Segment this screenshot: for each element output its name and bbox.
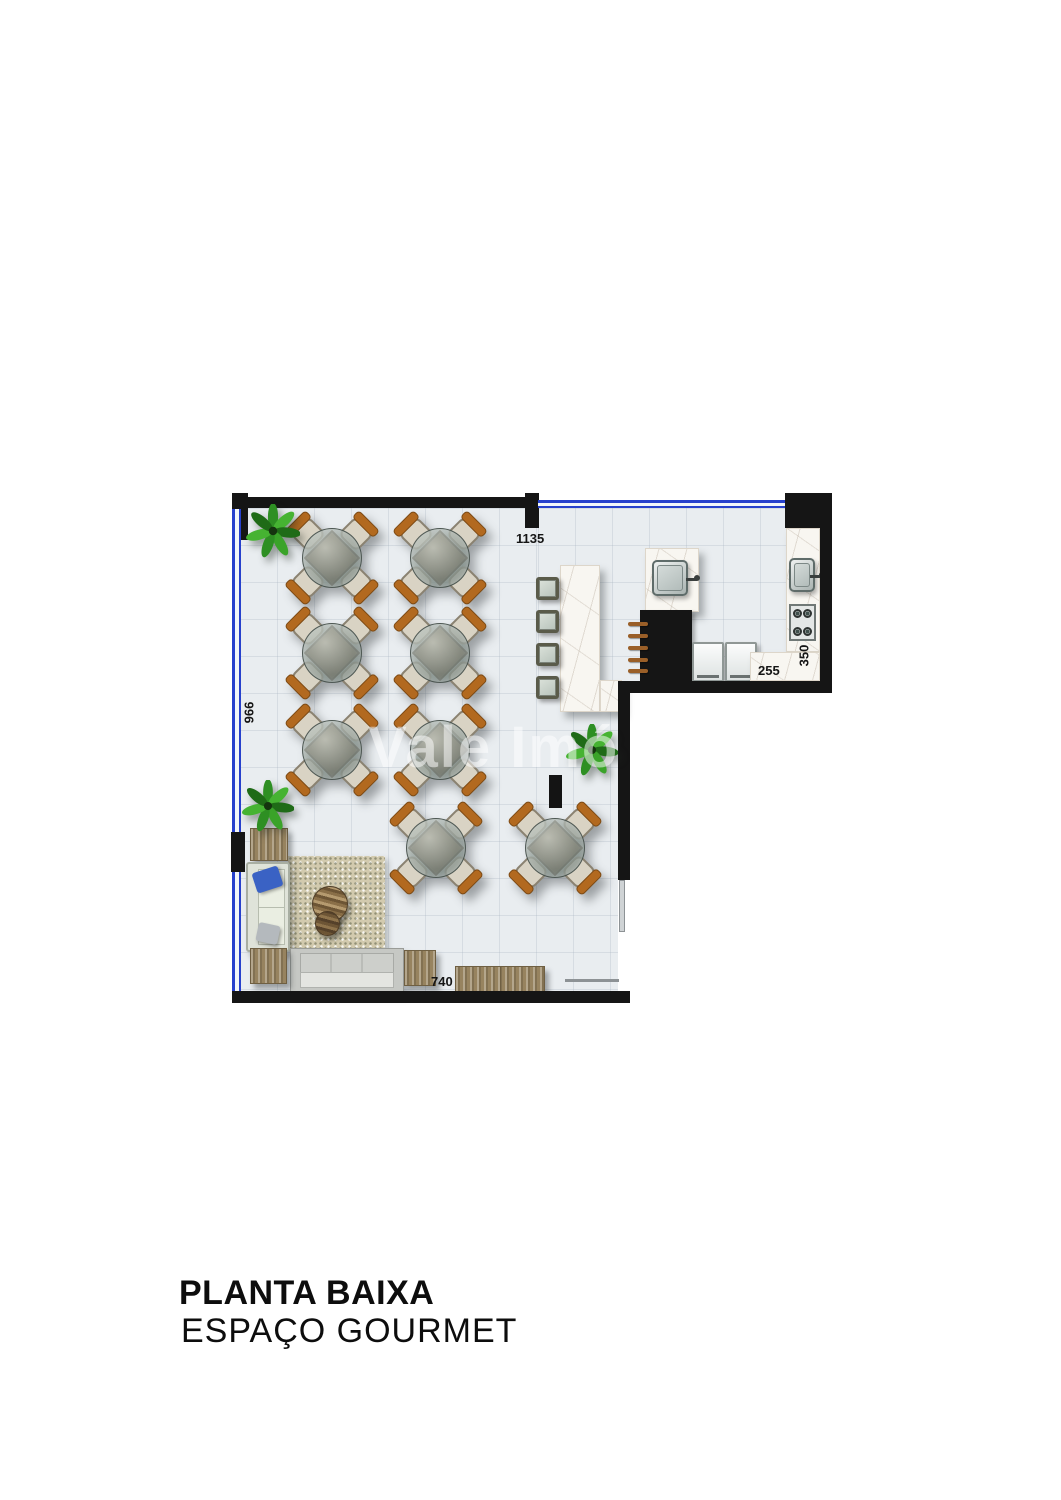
- dining-table-2: [394, 512, 486, 604]
- table-glass-top: [406, 818, 466, 878]
- plant-icon: [566, 724, 618, 776]
- plan-title: PLANTA BAIXA: [179, 1274, 434, 1313]
- skewer-icon: [628, 646, 648, 650]
- dining-table-5: [286, 704, 378, 796]
- sink-basin: [657, 565, 683, 591]
- sink-icon: [652, 560, 688, 596]
- table-glass-top: [302, 720, 362, 780]
- dining-table-7: [390, 802, 482, 894]
- table-glass-top: [410, 528, 470, 588]
- corner-top-right: [785, 493, 820, 528]
- wall-kitchen-bottom: [618, 681, 832, 693]
- bar-stool-icon: [536, 610, 559, 633]
- skewer-icon: [628, 634, 648, 638]
- column-left-wall: [231, 832, 245, 872]
- sink-icon: [789, 558, 815, 592]
- bar-stool-icon: [536, 577, 559, 600]
- floor-plan-page: 1135 966 350 255 740: [0, 0, 1061, 1500]
- dimension-bottom-width: 740: [431, 974, 453, 989]
- table-glass-top: [525, 818, 585, 878]
- column-icon: [549, 775, 562, 808]
- door-right-wall: [619, 880, 625, 932]
- dining-table-6: [394, 704, 486, 796]
- burner-icon: [803, 627, 812, 636]
- dimension-kitchen-depth: 350: [796, 645, 811, 667]
- sideboard-door: [456, 967, 501, 992]
- burner-icon: [803, 609, 812, 618]
- wall-main-right: [618, 681, 630, 880]
- burner-icon: [793, 609, 802, 618]
- table-glass-top: [410, 623, 470, 683]
- stove-icon: [789, 604, 816, 641]
- plant-icon: [242, 780, 294, 832]
- dimension-top-width: 1135: [516, 531, 544, 546]
- side-table-icon: [250, 948, 287, 984]
- coffee-table-small-icon: [315, 911, 340, 936]
- skewer-icon: [628, 622, 648, 626]
- sofa-horizontal: [290, 948, 404, 993]
- bar-stool-icon: [536, 643, 559, 666]
- plan-subtitle: ESPAÇO GOURMET: [181, 1312, 517, 1351]
- skewer-icon: [628, 658, 648, 662]
- dining-table-4: [394, 607, 486, 699]
- burner-icon: [793, 627, 802, 636]
- plant-icon: [246, 504, 300, 558]
- dimension-left-height: 966: [241, 702, 256, 724]
- skewer-icon: [628, 669, 648, 673]
- bar-stool-icon: [536, 676, 559, 699]
- window-left-wall: [232, 509, 241, 991]
- dining-table-3: [286, 607, 378, 699]
- sideboard: [455, 966, 545, 993]
- faucet-knob: [694, 575, 700, 581]
- column-top-middle: [525, 493, 539, 528]
- wall-bottom: [232, 991, 630, 1003]
- dimension-kitchen-width: 255: [758, 663, 780, 678]
- bar-counter: [560, 565, 600, 712]
- table-glass-top: [410, 720, 470, 780]
- side-table-icon: [250, 828, 288, 861]
- wall-shelf: [565, 979, 619, 982]
- window-kitchen-top: [538, 500, 785, 508]
- refrigerator-icon: [692, 642, 724, 682]
- table-glass-top: [302, 623, 362, 683]
- wall-kitchen-right: [820, 493, 832, 693]
- sink-basin: [794, 563, 810, 587]
- table-glass-top: [302, 528, 362, 588]
- dining-table-8: [509, 802, 601, 894]
- sofa-seat: [300, 972, 394, 988]
